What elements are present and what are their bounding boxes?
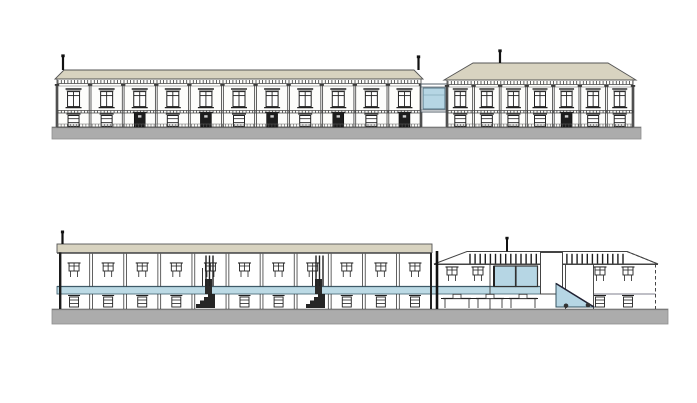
ground-window [614, 116, 625, 127]
pilaster-cap [353, 84, 357, 86]
table-item [519, 294, 527, 298]
pilaster-cap [551, 85, 555, 87]
drawing-canvas [0, 0, 697, 403]
door-arch [403, 115, 406, 117]
pilaster-cap [187, 84, 191, 86]
ground-base [52, 309, 668, 324]
architectural-drawing-sheet [0, 0, 697, 403]
ground-window [481, 116, 492, 127]
flue-cap [498, 49, 501, 52]
section-lower-window [70, 297, 79, 307]
table-item [486, 294, 494, 298]
pilaster-cap [253, 84, 257, 86]
door-arch [565, 115, 568, 117]
pilaster-cap [471, 85, 475, 87]
table-item [453, 294, 461, 298]
section-lower-window [172, 297, 181, 307]
door-arch [138, 115, 141, 117]
roof-slab [57, 244, 432, 253]
section-lower-window [624, 297, 633, 307]
stair-flight [196, 294, 215, 308]
pilaster-cap [154, 84, 158, 86]
door-arch [270, 115, 273, 117]
pilaster-cap [386, 84, 390, 86]
pilaster-cap [604, 85, 608, 87]
left-roof-band [55, 70, 423, 79]
longitudinal-section-drawing [52, 231, 668, 325]
pilaster-cap [525, 85, 529, 87]
pilaster-cap [286, 84, 290, 86]
pilaster-cap [498, 85, 502, 87]
pilaster-cap [578, 85, 582, 87]
ground-window [234, 116, 245, 127]
ramp-support [564, 304, 569, 309]
rooftop-volume [516, 266, 538, 287]
section-lower-window [104, 297, 113, 307]
section-lower-window [138, 297, 147, 307]
floor-slab [57, 287, 541, 295]
section-lower-window [274, 297, 283, 307]
rooftop-volume [494, 266, 516, 287]
section-lower-window [410, 297, 419, 307]
section-lower-window [240, 297, 249, 307]
section-lower-window [342, 297, 351, 307]
ramp-support [586, 303, 591, 308]
section-lower-window [376, 297, 385, 307]
door-arch [337, 115, 340, 117]
front-elevation-drawing [52, 49, 641, 139]
door-arch [204, 115, 207, 117]
pilaster-cap [445, 85, 449, 87]
pilaster-cap [320, 84, 324, 86]
ground-base [52, 127, 641, 139]
pilaster-cap [121, 84, 125, 86]
bridge-glazing [423, 88, 445, 109]
section-lower-window [596, 297, 605, 307]
right-hipped-roof [444, 63, 636, 80]
flue-cap [61, 54, 64, 57]
flue-cap [417, 55, 420, 58]
flue-cap [505, 237, 508, 240]
stair-flight [306, 294, 325, 308]
flue-cap [61, 231, 64, 234]
pilaster-cap [631, 85, 635, 87]
pilaster-cap [220, 84, 224, 86]
pilaster-cap [55, 84, 59, 86]
ground-window [508, 116, 519, 127]
pilaster-cap [88, 84, 92, 86]
